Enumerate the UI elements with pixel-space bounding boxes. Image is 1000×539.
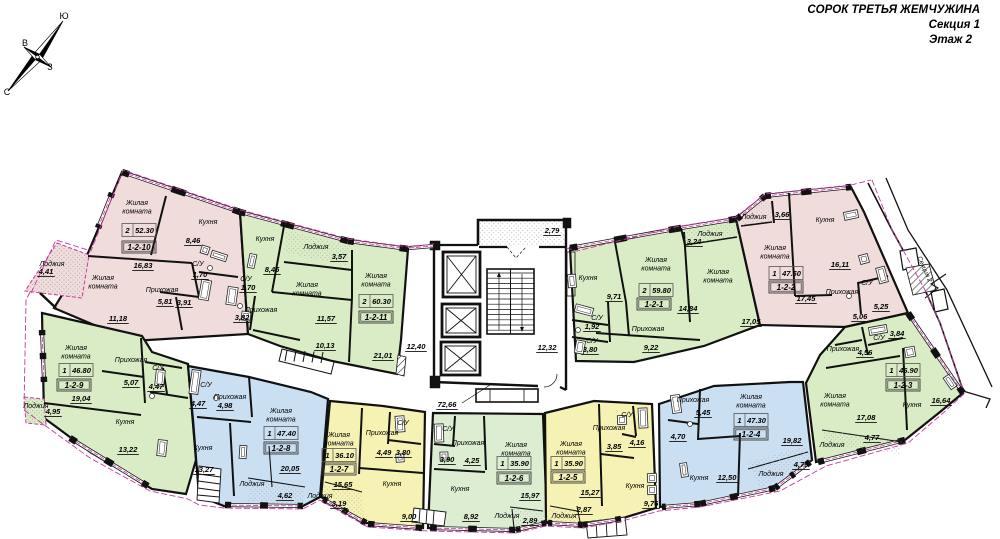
svg-text:1-2-7: 1-2-7 xyxy=(330,465,349,474)
svg-text:Прихожая: Прихожая xyxy=(826,289,859,296)
svg-text:4,16: 4,16 xyxy=(629,438,645,447)
svg-text:12,50: 12,50 xyxy=(718,473,738,482)
svg-text:Лоджия: Лоджия xyxy=(493,512,519,520)
svg-text:Лоджия: Лоджия xyxy=(306,492,332,500)
svg-text:35.90: 35.90 xyxy=(510,459,530,468)
svg-text:60.30: 60.30 xyxy=(372,297,392,306)
svg-text:46.90: 46.90 xyxy=(898,366,919,375)
svg-text:17,05: 17,05 xyxy=(742,317,762,326)
svg-text:1-2-8: 1-2-8 xyxy=(272,444,291,453)
svg-text:4,77: 4,77 xyxy=(864,433,880,442)
svg-text:комната: комната xyxy=(820,402,849,409)
svg-text:21,01: 21,01 xyxy=(373,351,393,360)
svg-text:1-2-2: 1-2-2 xyxy=(777,283,796,292)
svg-text:1-2-5: 1-2-5 xyxy=(559,473,578,482)
svg-text:9,22: 9,22 xyxy=(644,343,659,352)
svg-text:комната: комната xyxy=(641,266,670,273)
svg-text:8,92: 8,92 xyxy=(464,512,479,521)
svg-text:1-2-6: 1-2-6 xyxy=(505,474,524,483)
svg-text:Лоджия: Лоджия xyxy=(238,480,264,488)
svg-text:комната: комната xyxy=(703,278,732,285)
svg-text:2: 2 xyxy=(124,226,130,235)
svg-text:3,90: 3,90 xyxy=(440,455,455,464)
svg-text:З: З xyxy=(47,62,52,72)
svg-text:1: 1 xyxy=(325,451,329,460)
svg-text:В: В xyxy=(22,38,28,48)
svg-text:9,71: 9,71 xyxy=(607,292,622,301)
svg-text:59.80: 59.80 xyxy=(652,286,672,295)
svg-text:С/У: С/У xyxy=(200,382,213,389)
svg-text:15,65: 15,65 xyxy=(334,480,354,489)
svg-text:1,70: 1,70 xyxy=(193,270,208,279)
svg-text:комната: комната xyxy=(122,209,151,216)
svg-text:комната: комната xyxy=(361,282,390,289)
svg-text:4,98: 4,98 xyxy=(217,401,233,410)
svg-text:1,92: 1,92 xyxy=(585,322,600,331)
svg-text:С/У: С/У xyxy=(586,338,599,345)
svg-text:2,89: 2,89 xyxy=(522,516,538,525)
svg-text:С/У: С/У xyxy=(861,280,874,287)
svg-text:Жилая: Жилая xyxy=(559,441,582,448)
svg-text:комната: комната xyxy=(292,291,321,298)
svg-text:Кухня: Кухня xyxy=(579,275,598,282)
svg-text:2,79: 2,79 xyxy=(544,226,560,235)
svg-text:Прихожая: Прихожая xyxy=(827,346,860,353)
svg-text:комната: комната xyxy=(556,450,585,457)
svg-text:13,22: 13,22 xyxy=(119,445,139,454)
svg-text:1: 1 xyxy=(737,416,741,425)
svg-text:1-2-4: 1-2-4 xyxy=(742,430,761,439)
svg-text:9,00: 9,00 xyxy=(402,512,417,521)
svg-text:3,66: 3,66 xyxy=(775,210,790,219)
svg-text:Жилая: Жилая xyxy=(823,393,846,400)
svg-text:1: 1 xyxy=(554,459,558,468)
svg-text:Прихожая: Прихожая xyxy=(245,307,278,314)
svg-text:17,08: 17,08 xyxy=(857,413,877,422)
svg-text:С/У: С/У xyxy=(873,335,886,342)
svg-text:47.40: 47.40 xyxy=(276,429,297,438)
svg-text:2: 2 xyxy=(641,286,647,295)
svg-text:11,57: 11,57 xyxy=(317,314,336,323)
svg-text:1: 1 xyxy=(889,366,893,375)
svg-text:16,64: 16,64 xyxy=(932,396,952,405)
svg-text:19,82: 19,82 xyxy=(783,436,803,445)
svg-text:С/У: С/У xyxy=(591,315,604,322)
svg-text:Прихожая: Прихожая xyxy=(677,397,710,404)
svg-text:1-2-11: 1-2-11 xyxy=(365,313,388,322)
svg-text:4,49: 4,49 xyxy=(376,448,392,457)
svg-text:72,66: 72,66 xyxy=(438,400,458,409)
svg-text:1-2-1: 1-2-1 xyxy=(645,300,664,309)
svg-text:Кухня: Кухня xyxy=(903,402,922,409)
svg-text:Прихожая: Прихожая xyxy=(214,394,247,401)
svg-text:9,76: 9,76 xyxy=(644,499,659,508)
svg-text:Жилая: Жилая xyxy=(706,269,729,276)
svg-text:Жилая: Жилая xyxy=(644,257,667,264)
svg-text:11,18: 11,18 xyxy=(109,314,128,323)
svg-text:12,40: 12,40 xyxy=(407,342,427,351)
svg-text:Жилая: Жилая xyxy=(91,275,114,282)
svg-text:Жилая: Жилая xyxy=(269,408,292,415)
svg-text:Лоджия: Лоджия xyxy=(302,243,328,251)
svg-text:13,27: 13,27 xyxy=(195,465,215,474)
svg-text:3,57: 3,57 xyxy=(332,252,347,261)
svg-text:Жилая: Жилая xyxy=(125,200,148,207)
svg-text:1: 1 xyxy=(267,429,271,438)
svg-text:10,13: 10,13 xyxy=(316,341,336,350)
svg-text:1-2-9: 1-2-9 xyxy=(65,381,84,390)
svg-text:комната: комната xyxy=(736,403,765,410)
svg-text:5,81: 5,81 xyxy=(158,297,173,306)
svg-text:комната: комната xyxy=(61,354,90,361)
svg-text:5,25: 5,25 xyxy=(874,302,889,311)
svg-text:Прихожая: Прихожая xyxy=(115,357,148,364)
svg-text:3,85: 3,85 xyxy=(607,442,622,451)
svg-text:Кухня: Кухня xyxy=(194,445,213,452)
svg-text:Жилая: Жилая xyxy=(295,282,318,289)
svg-text:4,41: 4,41 xyxy=(38,267,54,276)
svg-text:47.30: 47.30 xyxy=(746,416,767,425)
svg-text:17,45: 17,45 xyxy=(797,294,817,303)
svg-text:4,62: 4,62 xyxy=(277,491,293,500)
svg-text:Ю: Ю xyxy=(59,11,68,21)
svg-text:С/У: С/У xyxy=(442,426,455,433)
svg-text:4,56: 4,56 xyxy=(857,348,873,357)
svg-text:С/У: С/У xyxy=(152,365,165,372)
svg-text:Кухня: Кухня xyxy=(816,217,835,224)
svg-text:3,84: 3,84 xyxy=(890,329,905,338)
svg-text:15,97: 15,97 xyxy=(521,491,541,500)
svg-text:1: 1 xyxy=(772,269,776,278)
svg-text:1-2-3: 1-2-3 xyxy=(894,381,913,390)
svg-text:Кухня: Кухня xyxy=(626,483,645,490)
svg-text:12,32: 12,32 xyxy=(538,343,558,352)
svg-text:3,24: 3,24 xyxy=(687,237,702,246)
svg-text:комната: комната xyxy=(266,417,295,424)
svg-text:Жилая: Жилая xyxy=(327,432,350,439)
svg-text:47.50: 47.50 xyxy=(781,269,802,278)
svg-text:С/У: С/У xyxy=(240,276,253,283)
svg-text:Лоджия: Лоджия xyxy=(818,441,844,449)
svg-text:Жилая: Жилая xyxy=(64,345,87,352)
svg-text:52.30: 52.30 xyxy=(135,226,155,235)
svg-text:С/У: С/У xyxy=(397,420,410,427)
svg-text:3,82: 3,82 xyxy=(235,313,250,322)
svg-text:Кухня: Кухня xyxy=(383,481,402,488)
svg-text:Лоджия: Лоджия xyxy=(740,213,766,221)
svg-text:комната: комната xyxy=(88,284,117,291)
svg-text:4,25: 4,25 xyxy=(464,456,480,465)
svg-text:комната: комната xyxy=(324,441,353,448)
svg-text:Кухня: Кухня xyxy=(116,419,135,426)
svg-text:Жилая: Жилая xyxy=(763,245,786,252)
svg-text:4,47: 4,47 xyxy=(190,399,206,408)
svg-text:4,47: 4,47 xyxy=(148,382,164,391)
svg-text:Прихожая: Прихожая xyxy=(632,326,665,333)
svg-text:4,70: 4,70 xyxy=(670,432,686,441)
svg-text:1: 1 xyxy=(500,459,504,468)
svg-text:Кухня: Кухня xyxy=(451,486,470,493)
svg-text:Прихожая: Прихожая xyxy=(146,287,179,294)
svg-text:Прихожая: Прихожая xyxy=(593,425,626,432)
svg-text:Кухня: Кухня xyxy=(199,219,218,226)
svg-text:С/У: С/У xyxy=(192,261,205,268)
svg-text:Секция 1: Секция 1 xyxy=(929,19,980,31)
svg-text:35.90: 35.90 xyxy=(564,459,584,468)
svg-text:Жилая: Жилая xyxy=(364,273,387,280)
svg-text:1,70: 1,70 xyxy=(241,283,256,292)
svg-text:Жилая: Жилая xyxy=(739,394,762,401)
svg-text:16,11: 16,11 xyxy=(831,260,849,269)
svg-text:3,80: 3,80 xyxy=(583,345,598,354)
svg-text:1-2-10: 1-2-10 xyxy=(127,243,151,252)
svg-text:2: 2 xyxy=(361,297,367,306)
svg-text:15,27: 15,27 xyxy=(581,488,601,497)
svg-text:Этаж 2: Этаж 2 xyxy=(929,34,973,46)
svg-text:46.80: 46.80 xyxy=(71,366,92,375)
svg-text:4,79: 4,79 xyxy=(793,460,809,469)
svg-text:3,91: 3,91 xyxy=(177,298,192,307)
svg-text:Лоджия: Лоджия xyxy=(757,470,783,478)
svg-text:Кухня: Кухня xyxy=(256,236,275,243)
svg-text:С: С xyxy=(4,87,11,97)
svg-text:20,05: 20,05 xyxy=(280,464,301,473)
svg-text:4,95: 4,95 xyxy=(45,407,61,416)
svg-text:14,84: 14,84 xyxy=(679,304,699,313)
svg-text:Кухня: Кухня xyxy=(690,475,709,482)
svg-text:Прихожая: Прихожая xyxy=(452,440,485,447)
svg-text:2,87: 2,87 xyxy=(576,505,592,514)
svg-text:5,07: 5,07 xyxy=(124,378,139,387)
svg-text:36.10: 36.10 xyxy=(335,451,355,460)
svg-text:СОРОК ТРЕТЬЯ ЖЕМЧУЖИНА: СОРОК ТРЕТЬЯ ЖЕМЧУЖИНА xyxy=(807,4,980,16)
svg-text:19,04: 19,04 xyxy=(72,394,92,403)
svg-text:С/У: С/У xyxy=(621,412,634,419)
svg-text:Прихожая: Прихожая xyxy=(366,430,399,437)
svg-text:5,45: 5,45 xyxy=(696,408,711,417)
svg-text:комната: комната xyxy=(760,254,789,261)
svg-text:3,80: 3,80 xyxy=(396,448,411,457)
svg-text:Жилая: Жилая xyxy=(504,442,527,449)
svg-text:3,19: 3,19 xyxy=(332,499,347,508)
svg-text:Лоджия: Лоджия xyxy=(550,512,576,520)
svg-text:8,45: 8,45 xyxy=(265,265,280,274)
svg-text:1: 1 xyxy=(62,366,66,375)
svg-text:16,83: 16,83 xyxy=(134,261,154,270)
svg-text:5,06: 5,06 xyxy=(853,312,868,321)
svg-text:8,46: 8,46 xyxy=(186,236,201,245)
